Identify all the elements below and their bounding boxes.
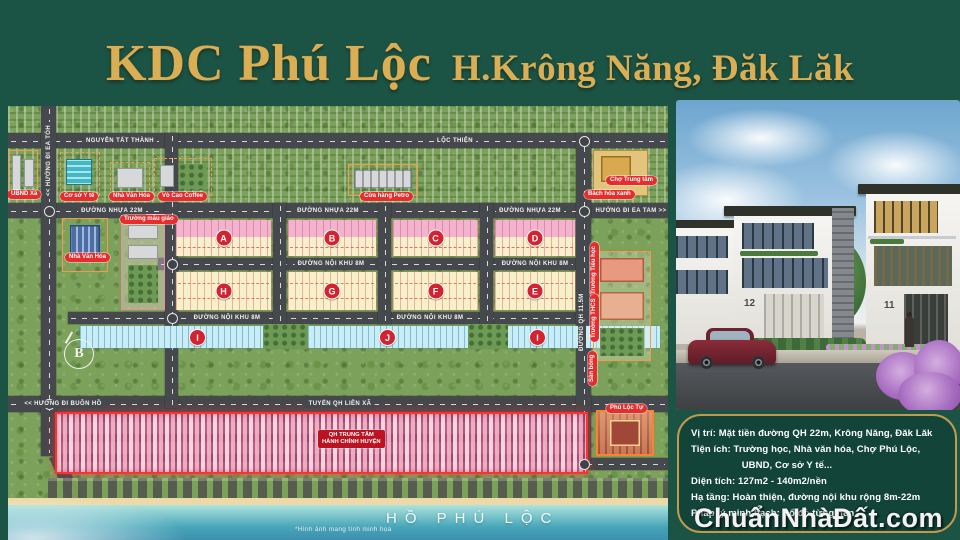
info-line-tien-ich-2: UBND, Cơ sở Y tế...: [691, 458, 943, 474]
image-disclaimer: *Hình ảnh mang tính minh họa: [295, 526, 392, 533]
poi-pill-phu-loc-tu: Phủ Lộc Tự: [606, 404, 647, 413]
road-label-nhua-22m-2: ĐƯỜNG NHỰA 22M: [294, 207, 362, 215]
planter: [740, 251, 818, 256]
building: [70, 225, 100, 255]
school-complex-block: [593, 251, 651, 361]
header-banner: KDC Phú Lộc H.Krông Năng, Đăk Lăk: [0, 0, 960, 100]
villa-roof: [858, 184, 960, 194]
block-label-C: C: [427, 230, 444, 247]
lot-block-D: D: [495, 220, 575, 256]
road-label-buon-ho: << HƯỚNG ĐI BUÔN HỒ: [21, 400, 104, 408]
green-patch: [263, 324, 308, 349]
building: [160, 165, 174, 187]
watermark: ChuẩnNhàĐất.com: [694, 503, 943, 534]
planter: [870, 239, 904, 244]
stone-column: [832, 208, 854, 346]
block-label-H: H: [215, 283, 232, 300]
block-label-G: G: [324, 283, 341, 300]
green-patch: [468, 324, 508, 349]
poi-pill-bach-hoa-xanh: Bách hóa xanh: [584, 190, 635, 199]
building: [12, 155, 21, 191]
poi-pill-nha-van-hoa: Nhà Văn Hóa: [109, 192, 154, 201]
cloud: [686, 108, 836, 168]
building: [24, 159, 34, 187]
poi-pill-y-te: Cơ sở Y tế: [60, 192, 98, 201]
clinic-building: [66, 159, 92, 185]
roundabout-icon: [579, 459, 590, 470]
roundabout-icon: [44, 206, 55, 217]
info-line-tien-ich: Tiện ích: Trường học, Nhà văn hóa, Chợ P…: [691, 442, 943, 458]
villa-windows: [742, 258, 828, 288]
villa-render-photo: 12 11: [676, 100, 960, 410]
lot-block-F: F: [393, 272, 478, 310]
person: [905, 317, 914, 347]
road-v4: [378, 203, 391, 324]
building: [128, 245, 158, 259]
road-label-ea-tam: HƯỚNG ĐI EA TAM >>: [593, 207, 668, 215]
block-label-J: J: [379, 329, 396, 346]
villa-windows: [742, 223, 814, 249]
roundabout-icon: [167, 313, 178, 324]
nha-van-hoa-block: [110, 162, 150, 196]
village-texture-mid: [8, 148, 668, 203]
villa-windows: [676, 236, 728, 258]
block-label-D: D: [527, 230, 544, 247]
block-label-I1: I: [189, 329, 206, 346]
kindergarten-block: [121, 214, 165, 310]
poi-pill-admin-center: QH TRUNG TÂM HÀNH CHÍNH HUYỆN: [318, 430, 385, 448]
block-label-A: A: [215, 230, 232, 247]
admin-center-line2: HÀNH CHÍNH HUYỆN: [322, 439, 381, 446]
poi-pill-nha-van-hoa-2: Nhà Văn Hóa: [65, 253, 110, 262]
temple-block: [596, 410, 654, 456]
house-number-12: 12: [744, 298, 755, 309]
lot-strip-cyan: [80, 326, 660, 348]
villa-windows: [676, 270, 728, 294]
road-label-nhua-22m-1: ĐƯỜNG NHỰA 22M: [78, 207, 146, 215]
roundabout-icon: [167, 259, 178, 270]
info-line-dien-tich: Diện tích: 127m2 - 140m2/nền: [691, 474, 943, 490]
road-label-noi-khu-1a: ĐƯỜNG NỘI KHU 8M: [295, 260, 368, 268]
admin-center-line1: QH TRUNG TÂM: [322, 432, 381, 439]
house-number-11: 11: [884, 300, 895, 311]
master-plan-map: NGUYỄN TẤT THÀNH LỘC THIỆN ĐƯỜNG NHỰA 22…: [8, 106, 668, 540]
school-building: [600, 292, 644, 320]
lot-block-B: B: [288, 220, 376, 256]
lot-block-G: G: [288, 272, 376, 310]
garden: [128, 265, 158, 303]
flower-bush: [898, 372, 960, 410]
compass-letter: B: [74, 346, 83, 362]
road-label-tuyen-qh: TUYẾN QH LIÊN XÃ: [306, 400, 375, 408]
road-noi-khu-2: [68, 312, 591, 324]
nha-van-hoa-2-block: [62, 218, 108, 272]
road-label-nguyen-tat-thanh: NGUYỄN TẤT THÀNH: [83, 137, 157, 145]
coffee-block: [154, 158, 212, 196]
block-label-E: E: [527, 283, 544, 300]
info-line-vi-tri: Vị trí: Mặt tiền đường QH 22m, Krông Năn…: [691, 426, 943, 442]
block-label-I2: I: [529, 329, 546, 346]
car-wheel: [700, 356, 713, 369]
building: [354, 170, 412, 188]
poi-pill-san-bong: Sân bóng: [588, 351, 597, 386]
lot-block-H: H: [176, 272, 271, 310]
lake-label: HỒ PHÚ LỘC: [386, 510, 559, 527]
fog-overlay: [8, 496, 188, 540]
block-label-F: F: [427, 283, 444, 300]
project-title: KDC Phú Lộc: [106, 34, 432, 93]
poi-pill-petro: Cửa hàng Petro: [360, 192, 413, 201]
villa-slat-windows: [874, 246, 952, 286]
school-yard: [600, 328, 644, 356]
poi-pill-coffee: Vò Cao Coffee: [158, 192, 207, 201]
lot-block-E: E: [495, 272, 575, 310]
poi-pill-cho-trung-tam: Chợ Trung tâm: [606, 176, 657, 185]
road-v5: [480, 203, 493, 324]
block-label-B: B: [324, 230, 341, 247]
school-building: [600, 258, 644, 282]
lakeside-houses-row: [48, 478, 668, 498]
poi-pill-thcs: Trường THCS: [590, 294, 599, 342]
road-label-qh-11-5m: ĐƯỜNG QH 11.5M: [578, 290, 586, 354]
garden: [179, 164, 207, 190]
poi-pill-tieu-hoc: Trường Tiểu học: [590, 242, 599, 298]
y-te-block: [60, 152, 100, 196]
lot-block-C: C: [393, 220, 478, 256]
road-label-noi-khu-2b: ĐƯỜNG NỘI KHU 8M: [394, 314, 467, 322]
poi-pill-ubnd: UBND Xã: [8, 190, 41, 199]
roundabout-icon: [579, 206, 590, 217]
project-location-subtitle: H.Krông Năng, Đăk Lăk: [452, 47, 854, 90]
compass-north-icon: B: [64, 339, 94, 369]
road-label-ea-toh: << HƯỚNG ĐI EA TÓH: [45, 122, 53, 199]
road-label-noi-khu-1b: ĐƯỜNG NỘI KHU 8M: [499, 260, 572, 268]
roundabout-icon: [579, 136, 590, 147]
road-v3: [273, 203, 286, 324]
village-texture-top: [8, 106, 668, 133]
car-wheel: [752, 356, 765, 369]
poi-pill-mau-giao: Trường mẫu giáo: [120, 215, 178, 224]
road-label-loc-thien: LỘC THIỆN: [434, 137, 476, 145]
road-label-nhua-22m-3: ĐƯỜNG NHỰA 22M: [496, 207, 564, 215]
lot-block-A: A: [176, 220, 271, 256]
road-label-noi-khu-2a: ĐƯỜNG NỘI KHU 8M: [191, 314, 264, 322]
temple-court: [610, 420, 640, 446]
villa-windows-lit: [874, 201, 938, 233]
building: [128, 225, 158, 239]
building: [117, 168, 143, 188]
